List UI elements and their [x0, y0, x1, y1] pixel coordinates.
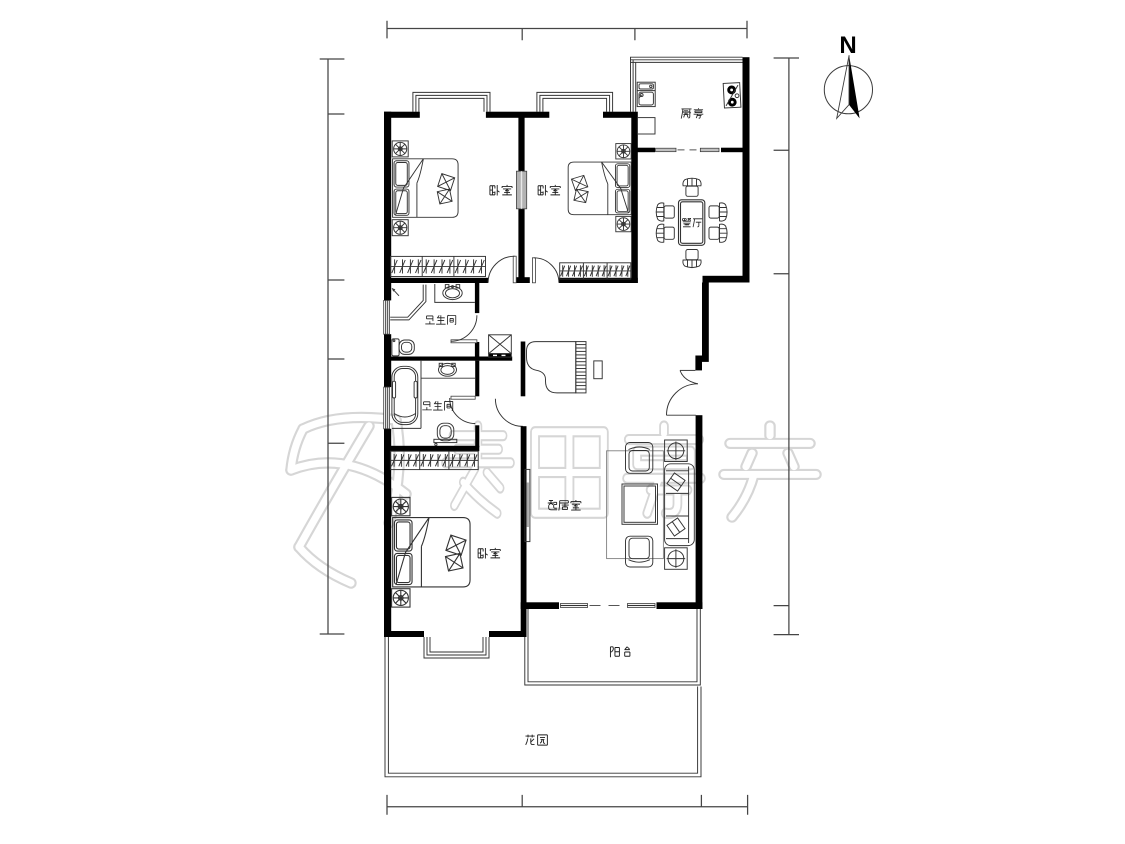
svg-text:N: N [839, 32, 856, 59]
